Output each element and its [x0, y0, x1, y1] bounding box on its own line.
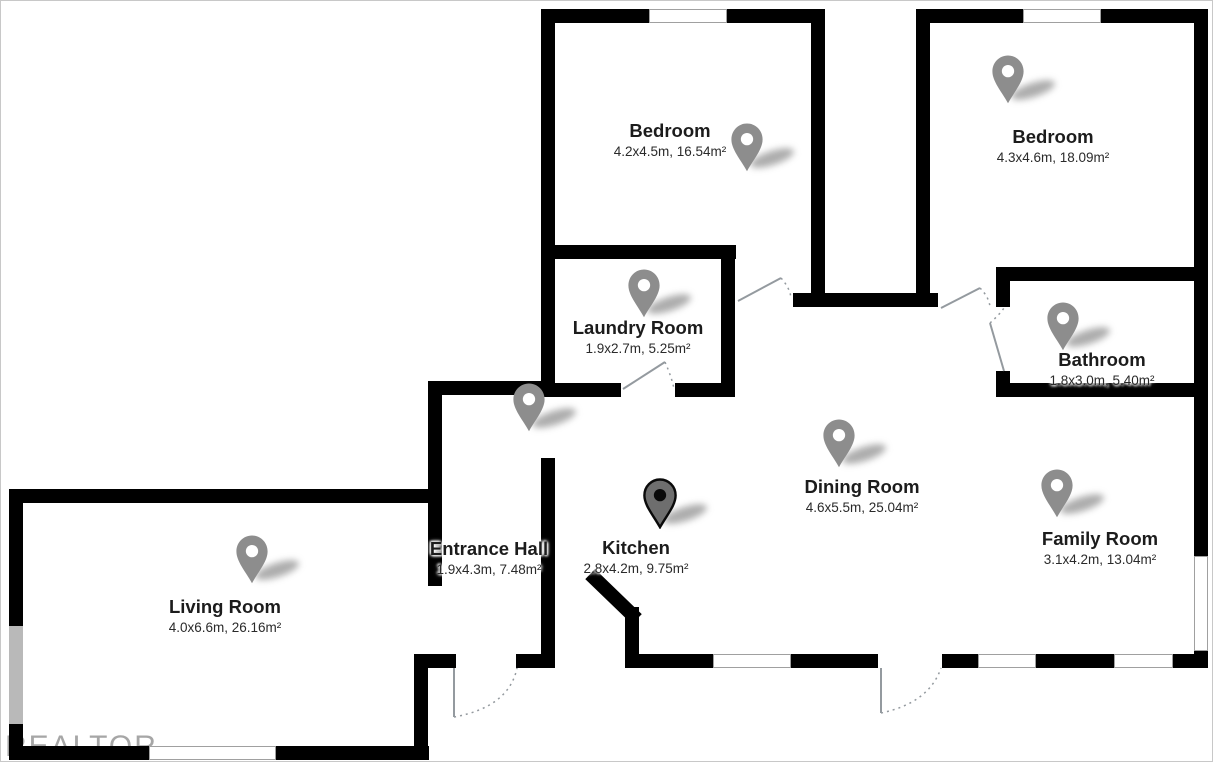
- room-name: Dining Room: [804, 476, 919, 498]
- room-label-living-room: Living Room 4.0x6.6m, 26.16m²: [169, 596, 282, 637]
- door-swings: [1, 1, 1213, 762]
- location-pin-icon[interactable]: [1045, 301, 1081, 352]
- room-dimensions: 2.8x4.2m, 9.75m²: [583, 559, 688, 578]
- room-dimensions: 1.8x3.0m, 5.40m²: [1049, 371, 1154, 390]
- location-pin-icon[interactable]: [821, 418, 857, 469]
- room-name: Bedroom: [997, 126, 1110, 148]
- location-pin-selected-icon[interactable]: [642, 478, 678, 529]
- room-label-laundry-room: Laundry Room 1.9x2.7m, 5.25m²: [573, 317, 704, 358]
- room-name: Living Room: [169, 596, 282, 618]
- room-name: Laundry Room: [573, 317, 704, 339]
- location-pin-icon[interactable]: [1039, 468, 1075, 519]
- room-name: Family Room: [1042, 528, 1158, 550]
- room-label-bedroom-2: Bedroom 4.3x4.6m, 18.09m²: [997, 126, 1110, 167]
- room-label-kitchen: Kitchen 2.8x4.2m, 9.75m²: [583, 537, 688, 578]
- room-dimensions: 4.0x6.6m, 26.16m²: [169, 618, 282, 637]
- location-pin-icon[interactable]: [511, 382, 547, 433]
- room-dimensions: 4.6x5.5m, 25.04m²: [804, 498, 919, 517]
- location-pin-icon[interactable]: [234, 534, 270, 585]
- room-label-bedroom-1: Bedroom 4.2x4.5m, 16.54m²: [614, 120, 727, 161]
- room-name: Bedroom: [614, 120, 727, 142]
- room-label-family-room: Family Room 3.1x4.2m, 13.04m²: [1042, 528, 1158, 569]
- room-dimensions: 4.2x4.5m, 16.54m²: [614, 142, 727, 161]
- location-pin-icon[interactable]: [990, 54, 1026, 105]
- room-label-bathroom: Bathroom 1.8x3.0m, 5.40m²: [1049, 349, 1154, 390]
- room-name: Bathroom: [1049, 349, 1154, 371]
- room-dimensions: 3.1x4.2m, 13.04m²: [1042, 550, 1158, 569]
- room-dimensions: 1.9x4.3m, 7.48m²: [430, 560, 548, 579]
- location-pin-icon[interactable]: [626, 268, 662, 319]
- room-dimensions: 4.3x4.6m, 18.09m²: [997, 148, 1110, 167]
- room-dimensions: 1.9x2.7m, 5.25m²: [573, 339, 704, 358]
- location-pin-icon[interactable]: [729, 122, 765, 173]
- room-name: Kitchen: [583, 537, 688, 559]
- room-label-dining-room: Dining Room 4.6x5.5m, 25.04m²: [804, 476, 919, 517]
- room-name: Entrance Hall: [430, 538, 548, 560]
- room-label-entrance-hall: Entrance Hall 1.9x4.3m, 7.48m²: [430, 538, 548, 579]
- floor-plan: REALTOR Bedroom 4.2x4.5m, 16.54m² Bedroo…: [0, 0, 1213, 762]
